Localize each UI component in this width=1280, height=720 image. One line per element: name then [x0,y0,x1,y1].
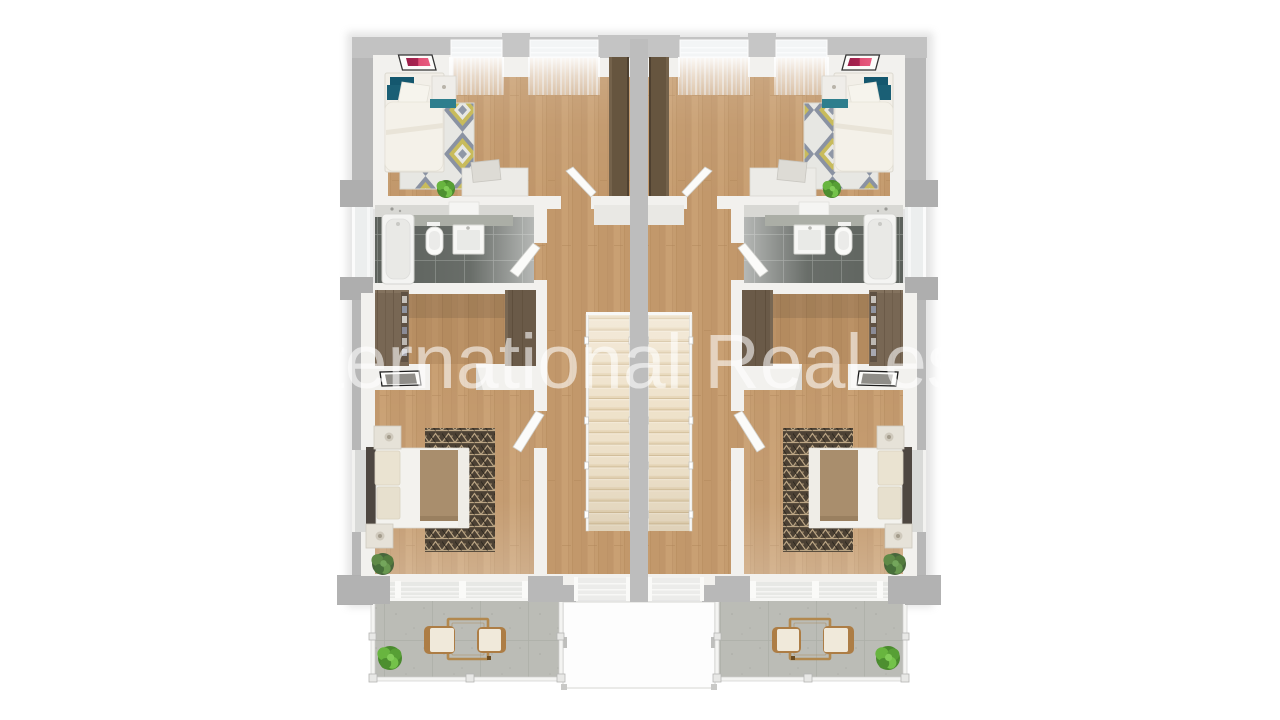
svg-text:International Real estate: International Real estate [259,319,1094,405]
